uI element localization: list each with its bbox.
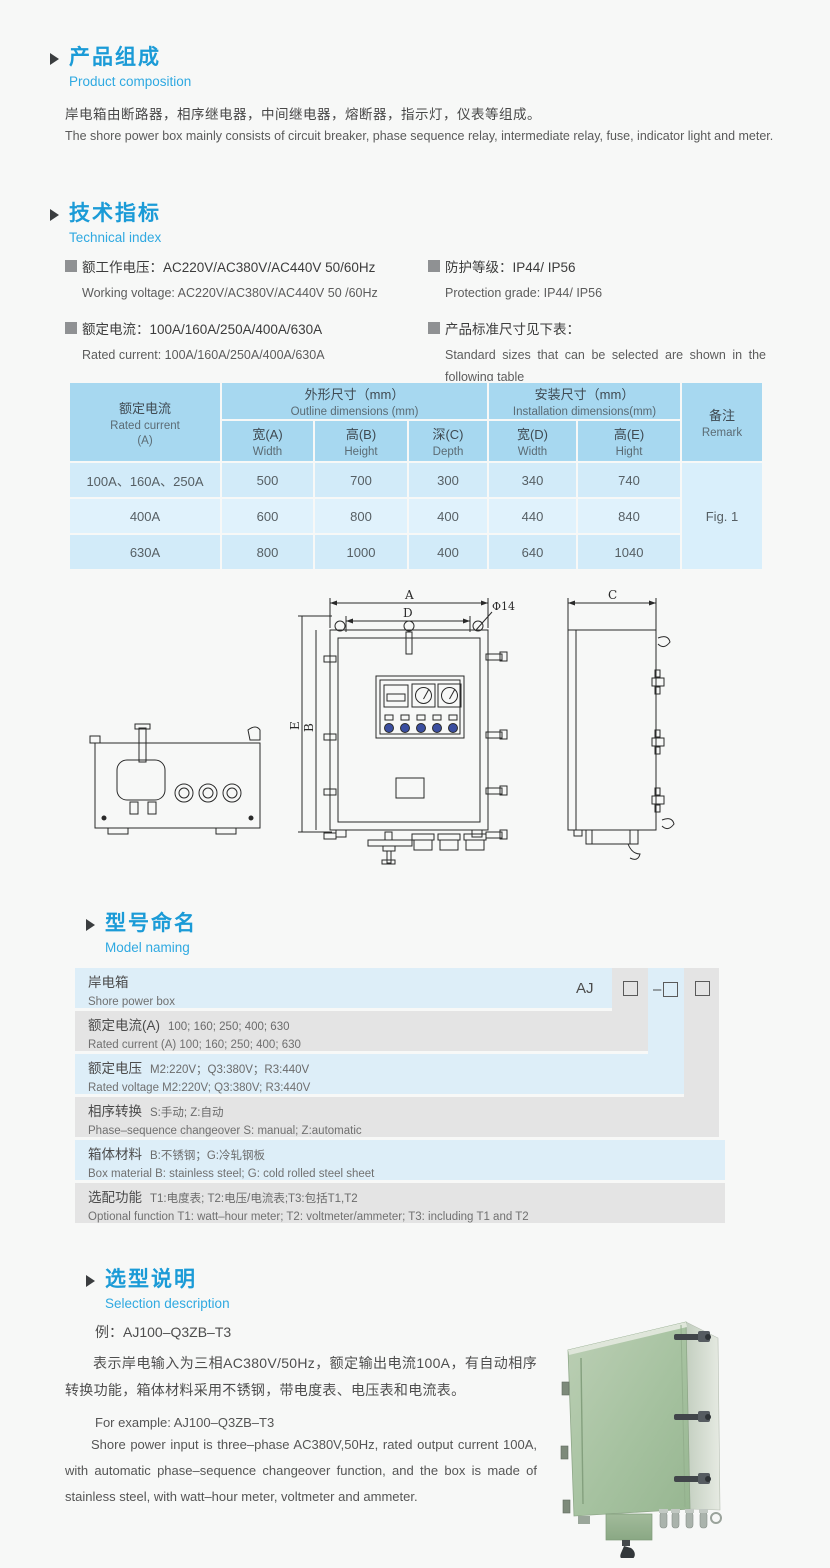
spec-item: 防护等级：IP44/ IP56 Protection grade: IP44/ … bbox=[428, 256, 766, 305]
bullet-square-icon bbox=[428, 322, 440, 334]
sub-header-height-b: 高(B)Height bbox=[314, 420, 408, 462]
section-title-zh: 技术指标 bbox=[69, 202, 161, 226]
section-titles: 型号命名 Model naming bbox=[105, 912, 197, 955]
selection-body-en: Shore power input is three–phase AC380V,… bbox=[65, 1432, 537, 1510]
model-code-box-3 bbox=[695, 981, 710, 996]
selection-body-zh: 表示岸电输入为三相AC380V/50Hz，额定输出电流100A，有自动相序转换功… bbox=[65, 1350, 537, 1405]
section-title-zh: 产品组成 bbox=[69, 46, 191, 70]
section-title-zh: 选型说明 bbox=[105, 1268, 230, 1292]
section-titles: 产品组成 Product composition bbox=[69, 46, 191, 89]
section-arrow-icon bbox=[50, 53, 59, 65]
hole-label: Φ14 bbox=[492, 600, 515, 613]
section-header-product: 产品组成 Product composition bbox=[50, 46, 191, 89]
spec-item: 额工作电压：AC220V/AC380V/AC440V 50/60Hz Worki… bbox=[65, 256, 421, 305]
selection-example-zh: 例：AJ100–Q3ZB–T3 bbox=[65, 1322, 537, 1342]
spec-column-left: 额工作电压：AC220V/AC380V/AC440V 50/60Hz Worki… bbox=[65, 256, 421, 380]
code-box-icon bbox=[623, 981, 638, 996]
selection-example-en: For example: AJ100–Q3ZB–T3 bbox=[65, 1415, 537, 1430]
datasheet-page: 产品组成 Product composition 岸电箱由断路器，相序继电器，中… bbox=[0, 0, 830, 1568]
dim-label-e: E bbox=[288, 721, 302, 730]
front-view-drawing bbox=[298, 598, 507, 864]
table-row: 100A、160A、250A 500 700 300 340 740 Fig. … bbox=[69, 462, 763, 498]
spec-zh: 额定电流：100A/160A/250A/400A/630A bbox=[82, 318, 322, 338]
section-arrow-icon bbox=[86, 1275, 95, 1287]
sub-header-depth-c: 深(C)Depth bbox=[408, 420, 488, 462]
ladder-row-text: 额定电压M2:220V；Q3:380V；R3:440V Rated voltag… bbox=[88, 1057, 310, 1094]
selection-description-text: 例：AJ100–Q3ZB–T3 表示岸电输入为三相AC380V/50Hz，额定输… bbox=[65, 1322, 537, 1510]
section-title-zh: 型号命名 bbox=[105, 912, 197, 936]
shore-power-box-photo bbox=[561, 1322, 721, 1558]
dim-label-b: B bbox=[302, 723, 316, 732]
ladder-row-text: 箱体材料B:不锈钢；G:冷轧钢板 Box material B: stainle… bbox=[88, 1143, 374, 1180]
bullet-square-icon bbox=[428, 260, 440, 272]
section-header-technical: 技术指标 Technical index bbox=[50, 202, 161, 245]
side-view-drawing bbox=[568, 598, 674, 859]
remark-cell: Fig. 1 bbox=[681, 462, 763, 570]
sub-header-width-a: 宽(A)Width bbox=[221, 420, 314, 462]
spec-zh: 额工作电压：AC220V/AC380V/AC440V 50/60Hz bbox=[82, 256, 375, 276]
model-code-prefix: AJ bbox=[576, 980, 594, 997]
spec-en: Rated current: 100A/160A/250A/400A/630A bbox=[65, 345, 421, 367]
section-titles: 技术指标 Technical index bbox=[69, 202, 161, 245]
spec-item: 产品标准尺寸见下表： Standard sizes that can be se… bbox=[428, 318, 766, 389]
ladder-row-text: 选配功能T1:电度表; T2:电压/电流表;T3:包括T1,T2 Optiona… bbox=[88, 1186, 529, 1223]
spec-zh: 防护等级：IP44/ IP56 bbox=[445, 256, 576, 276]
product-photo bbox=[548, 1298, 810, 1558]
bullet-square-icon bbox=[65, 260, 77, 272]
spec-en: Working voltage: AC220V/AC380V/AC440V 50… bbox=[65, 283, 421, 305]
code-box-icon bbox=[663, 982, 678, 997]
table-row: 400A 600 800 400 440 840 bbox=[69, 498, 763, 534]
col-header-installation: 安装尺寸（mm） Installation dimensions(mm) bbox=[488, 382, 681, 420]
dimension-table: 额定电流 Rated current (A) 外形尺寸（mm） Outline … bbox=[68, 381, 764, 571]
spec-zh: 产品标准尺寸见下表： bbox=[445, 318, 580, 338]
sub-header-width-d: 宽(D)Width bbox=[488, 420, 577, 462]
section-header-model: 型号命名 Model naming bbox=[86, 912, 197, 955]
table-row: 630A 800 1000 400 640 1040 bbox=[69, 534, 763, 570]
section-title-en: Technical index bbox=[69, 230, 161, 245]
ladder-row-text: 相序转换S:手动; Z:自动 Phase–sequence changeover… bbox=[88, 1100, 362, 1137]
spec-item: 额定电流：100A/160A/250A/400A/630A Rated curr… bbox=[65, 318, 421, 367]
col-header-remark: 备注 Remark bbox=[681, 382, 763, 462]
ladder-row-text: 额定电流(A)100; 160; 250; 400; 630 Rated cur… bbox=[88, 1014, 301, 1051]
product-composition-zh: 岸电箱由断路器，相序继电器，中间继电器，熔断器，指示灯，仪表等组成。 bbox=[65, 103, 541, 123]
dim-label-a: A bbox=[404, 588, 414, 602]
section-title-en: Model naming bbox=[105, 940, 197, 955]
dim-label-c: C bbox=[608, 588, 617, 602]
section-title-en: Product composition bbox=[69, 74, 191, 89]
model-code-box-2: – bbox=[653, 981, 678, 998]
col-header-outline: 外形尺寸（mm） Outline dimensions (mm) bbox=[221, 382, 488, 420]
col-header-rated-current: 额定电流 Rated current (A) bbox=[69, 382, 221, 462]
indicator-lights bbox=[385, 715, 458, 733]
section-arrow-icon bbox=[86, 919, 95, 931]
section-titles: 选型说明 Selection description bbox=[105, 1268, 230, 1311]
section-title-en: Selection description bbox=[105, 1296, 230, 1311]
spec-en: Protection grade: IP44/ IP56 bbox=[428, 283, 766, 305]
bottom-view-drawing bbox=[90, 724, 260, 834]
bullet-square-icon bbox=[65, 322, 77, 334]
product-composition-en: The shore power box mainly consists of c… bbox=[65, 129, 773, 143]
model-naming-ladder: 岸电箱 Shore power box 额定电流(A)100; 160; 250… bbox=[68, 968, 768, 1226]
ladder-row-text: 岸电箱 Shore power box bbox=[88, 971, 175, 1008]
section-header-selection: 选型说明 Selection description bbox=[86, 1268, 230, 1311]
code-box-icon bbox=[695, 981, 710, 996]
dim-label-d: D bbox=[403, 606, 413, 620]
section-arrow-icon bbox=[50, 209, 59, 221]
spec-column-right: 防护等级：IP44/ IP56 Protection grade: IP44/ … bbox=[428, 256, 766, 402]
technical-drawing: A D Φ14 E B C bbox=[80, 588, 760, 888]
model-code-box-1 bbox=[623, 981, 638, 996]
sub-header-height-e: 高(E)Hight bbox=[577, 420, 681, 462]
